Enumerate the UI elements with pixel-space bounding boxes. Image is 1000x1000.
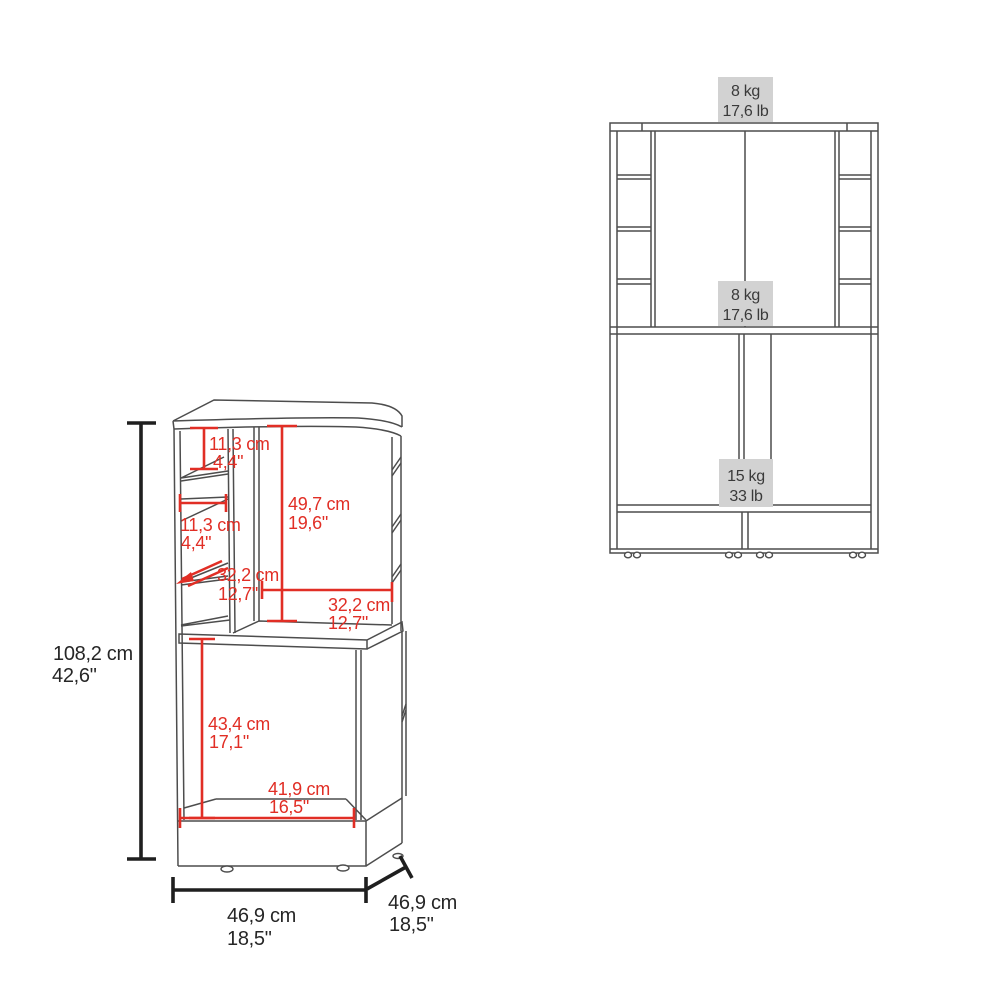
- dim-shelf-width: 32,2 cm 12,7": [176, 561, 279, 604]
- furniture-dimension-diagram: 11,3 cm 4,4" 11,3 cm 4,4" 49,7 cm 19,6" …: [0, 0, 1000, 1000]
- dim-left-shelf-depth: 11,3 cm 4,4": [180, 494, 241, 553]
- dimension-diagram-page: 11,3 cm 4,4" 11,3 cm 4,4" 49,7 cm 19,6" …: [0, 0, 1000, 1000]
- weight-middle-lb: 17,6 lb: [723, 307, 769, 324]
- dim-top-shelf-height-inch: 4,4": [213, 452, 243, 472]
- dim-lower-cavity-height: 43,4 cm 17,1": [189, 639, 270, 818]
- cabinet-counter: [179, 621, 403, 649]
- dim-upper-cavity-height-cm: 49,7 cm: [288, 494, 350, 514]
- dim-shelf-width-inch: 12,7": [218, 584, 258, 604]
- dim-overall-height: 108,2 cm 42,6": [52, 423, 156, 859]
- cabinet-foot: [337, 865, 349, 871]
- dim-lower-cavity-height-cm: 43,4 cm: [208, 714, 270, 734]
- elevation-drawers: [617, 505, 871, 549]
- weight-cabinet-kg: 15 kg: [727, 468, 765, 485]
- dim-lower-cavity-width-inch: 16,5": [269, 797, 309, 817]
- dim-shelf-width-cm: 32,2 cm: [217, 565, 279, 585]
- dim-overall-height-inch: 42,6": [52, 665, 97, 687]
- weight-cabinet-lb: 33 lb: [729, 488, 763, 505]
- dim-top-shelf-height-cm: 11,3 cm: [209, 434, 270, 454]
- dim-overall-depth: 46,9 cm 18,5": [367, 856, 457, 936]
- weight-middle-kg: 8 kg: [731, 287, 760, 304]
- dim-lower-cavity-height-inch: 17,1": [209, 732, 249, 752]
- dim-overall-width-cm: 46,9 cm: [227, 905, 296, 927]
- dim-top-shelf-height: 11,3 cm 4,4": [190, 428, 270, 472]
- dim-lower-cavity-width-cm: 41,9 cm: [268, 779, 330, 799]
- dim-left-shelf-depth-inch: 4,4": [181, 533, 211, 553]
- weight-label-middle-shelf: 8 kg 17,6 lb: [718, 281, 773, 326]
- perspective-view: 11,3 cm 4,4" 11,3 cm 4,4" 49,7 cm 19,6" …: [52, 400, 457, 950]
- dim-overall-depth-cm: 46,9 cm: [388, 892, 457, 914]
- dim-upper-cavity-height-inch: 19,6": [288, 513, 328, 533]
- dim-overall-height-cm: 108,2 cm: [53, 643, 133, 665]
- cabinet-side-shelf-edges: [392, 457, 406, 722]
- cabinet-top: [173, 400, 402, 436]
- dim-overall-width-inch: 18,5": [227, 928, 272, 950]
- weight-label-cabinet-shelf: 15 kg 33 lb: [719, 459, 773, 507]
- weight-label-top-surface: 8 kg 17,6 lb: [718, 77, 773, 122]
- dim-overall-width: 46,9 cm 18,5": [173, 877, 366, 950]
- dim-upper-cavity-width-cm: 32,2 cm: [328, 595, 390, 615]
- cabinet-foot: [221, 866, 233, 872]
- dim-upper-cavity-width-inch: 12,7": [328, 613, 368, 633]
- weight-top-lb: 17,6 lb: [723, 103, 769, 120]
- dim-upper-cavity-height: 49,7 cm 19,6": [267, 426, 350, 621]
- elevation-view: 8 kg 17,6 lb 8 kg 17,6 lb 15 kg 33 lb: [610, 77, 878, 558]
- dim-overall-depth-inch: 18,5": [389, 914, 434, 936]
- weight-top-kg: 8 kg: [731, 83, 760, 100]
- dim-left-shelf-depth-cm: 11,3 cm: [180, 515, 241, 535]
